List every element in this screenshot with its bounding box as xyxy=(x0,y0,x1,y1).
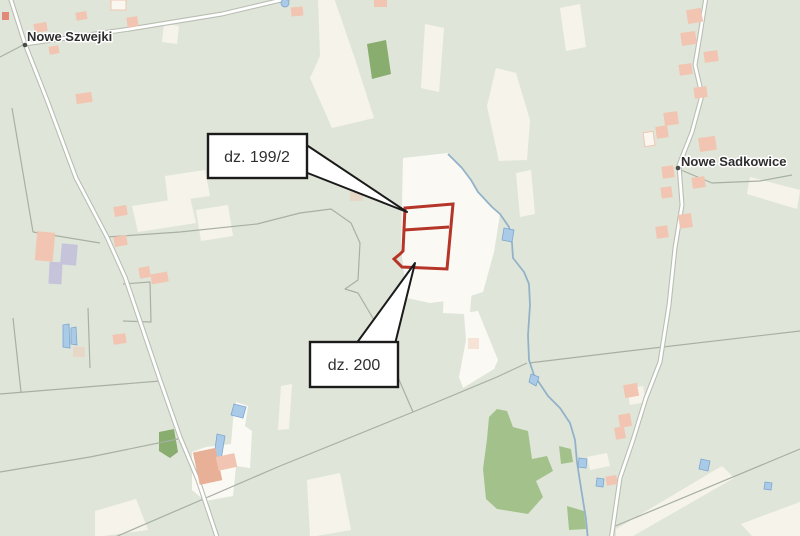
building xyxy=(112,333,126,345)
pond xyxy=(63,324,70,348)
building xyxy=(291,6,304,16)
building xyxy=(48,262,62,285)
pond xyxy=(281,0,289,7)
building xyxy=(703,50,718,63)
field-patch xyxy=(162,24,179,44)
building xyxy=(678,63,692,76)
building xyxy=(126,16,138,27)
pond xyxy=(231,404,246,418)
field-patch xyxy=(196,205,233,241)
building xyxy=(623,383,639,398)
callout-label-dz-200: dz. 200 xyxy=(328,357,381,374)
callout-dz-200: dz. 200 xyxy=(310,342,398,387)
building xyxy=(660,186,672,198)
pond xyxy=(578,458,587,468)
building xyxy=(661,165,675,179)
building xyxy=(618,413,632,428)
place-label-nowe-sadkowice: Nowe Sadkowice xyxy=(681,154,786,169)
building xyxy=(2,12,9,20)
building xyxy=(138,266,151,279)
map-canvas[interactable]: dz. 199/2 dz. 200 Nowe Szwejki Nowe Sadk… xyxy=(0,0,800,536)
callout-label-dz-199-2: dz. 199/2 xyxy=(224,149,290,166)
building xyxy=(686,8,703,24)
building xyxy=(643,131,655,146)
pond xyxy=(71,327,77,345)
building xyxy=(678,213,693,229)
building xyxy=(73,347,85,357)
building xyxy=(35,231,55,261)
building xyxy=(111,0,126,10)
pond xyxy=(596,478,604,487)
building xyxy=(374,0,387,7)
building xyxy=(691,176,705,189)
building xyxy=(698,136,717,152)
building xyxy=(468,338,479,349)
callout-dz-199-2: dz. 199/2 xyxy=(208,134,307,178)
building xyxy=(655,225,669,239)
building xyxy=(680,31,697,46)
building xyxy=(663,111,679,126)
pond xyxy=(764,482,772,490)
pond xyxy=(502,228,514,242)
building xyxy=(655,125,669,139)
building xyxy=(614,426,626,440)
pond xyxy=(699,459,710,471)
building xyxy=(60,243,78,265)
place-label-nowe-szwejki: Nowe Szwejki xyxy=(27,29,112,44)
building xyxy=(693,86,707,99)
place-marker-nowe-sadkowice xyxy=(676,166,681,171)
building xyxy=(48,45,59,55)
building xyxy=(605,475,617,486)
